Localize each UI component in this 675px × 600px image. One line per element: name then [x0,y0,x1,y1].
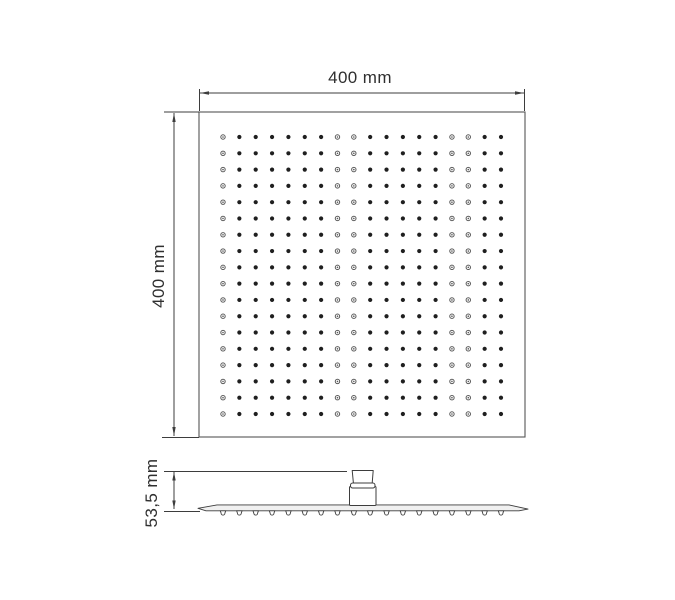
nozzle-dot [483,135,487,139]
nozzle-dot [286,379,290,383]
nozzle-dot [401,396,405,400]
nozzle-dot-center [451,234,453,236]
nozzle-dot-center [451,201,453,203]
nozzle-dot [319,216,323,220]
nozzle-dot [433,347,437,351]
nozzle-dot [286,314,290,318]
nozzle-dot [286,363,290,367]
nozzle-dot-center [353,381,355,383]
nozzle-dot [499,282,503,286]
nozzle-dot [384,330,388,334]
nozzle-dot [499,363,503,367]
width-dimension [200,89,525,111]
nozzle-dot [237,363,241,367]
nozzle-dot [237,298,241,302]
nozzle-dot [499,265,503,269]
side-nozzle [367,511,372,515]
nozzle-dot [401,135,405,139]
nozzle-dot [499,412,503,416]
nozzle-dot [237,167,241,171]
nozzle-dot [384,233,388,237]
nozzle-dot-center [337,169,339,171]
nozzle-dot-center [467,364,469,366]
nozzle-dot [303,184,307,188]
nozzle-dot-center [337,299,339,301]
nozzle-dot [303,314,307,318]
nozzle-dot [286,412,290,416]
nozzle-dot [303,396,307,400]
nozzle-dot [433,249,437,253]
nozzle-dot [384,396,388,400]
nozzle-dot [417,167,421,171]
side-nozzle [220,511,225,515]
nozzle-dot [286,216,290,220]
nozzle-dot-center [222,348,224,350]
nozzle-dot [433,265,437,269]
nozzle-dot [417,363,421,367]
nozzle-dot [499,249,503,253]
nozzle-dot [237,216,241,220]
side-nozzle [482,511,487,515]
nozzle-dot [237,249,241,253]
nozzle-dot [368,184,372,188]
nozzle-dot [499,347,503,351]
nozzle-dot-center [337,413,339,415]
nozzle-dot [499,314,503,318]
nozzle-dot [254,151,258,155]
nozzle-dot [417,298,421,302]
side-nozzle [449,511,454,515]
nozzle-dot [286,233,290,237]
nozzle-dot [254,379,258,383]
nozzle-dot [237,184,241,188]
nozzle-dot-center [353,397,355,399]
side-view [198,471,528,516]
nozzle-dot-center [337,348,339,350]
nozzle-dot [254,314,258,318]
nozzle-dot [303,249,307,253]
nozzle-dot [237,379,241,383]
nozzle-dot [319,135,323,139]
nozzle-dot-center [222,250,224,252]
nozzle-dot [401,282,405,286]
nozzle-dot-center [222,152,224,154]
side-nozzle [433,511,438,515]
nozzle-dot [483,282,487,286]
nozzle-dot [417,200,421,204]
nozzle-dot-center [222,136,224,138]
nozzle-dot-center [222,283,224,285]
nozzle-dot-center [451,413,453,415]
nozzle-dot [384,167,388,171]
nozzle-dot [319,282,323,286]
nozzle-dot [237,330,241,334]
nozzle-dot [483,330,487,334]
nozzle-dot-center [467,250,469,252]
nozzle-dot-center [467,169,469,171]
nozzle-dot [384,184,388,188]
nozzle-dot [499,298,503,302]
nozzle-dot-center [353,152,355,154]
nozzle-dot [270,282,274,286]
nozzle-dot [270,249,274,253]
arrowhead-left [200,91,209,94]
nozzle-dot [384,151,388,155]
nozzle-dot-center [467,299,469,301]
nozzle-dot-center [337,201,339,203]
nozzle-dot [368,282,372,286]
nozzle-dot [417,282,421,286]
nozzle-dot [286,135,290,139]
nozzle-dot [417,216,421,220]
drawing-canvas: 400 mm 400 mm 53,5 mm [0,0,675,600]
side-nozzle [253,511,258,515]
nozzle-dot [433,200,437,204]
side-nozzle [498,511,503,515]
shower-face-outline [199,112,525,437]
nozzle-dot-center [337,218,339,220]
nozzle-dot-center [222,267,224,269]
nozzle-dot [483,347,487,351]
side-nozzle [335,511,340,515]
nozzle-dot [319,151,323,155]
nozzle-dot [499,167,503,171]
nozzle-dot [270,200,274,204]
nozzle-dot [319,265,323,269]
nozzle-dot-center [337,152,339,154]
nozzle-dot-center [353,332,355,334]
nozzle-dot-center [222,299,224,301]
nozzle-dot [303,216,307,220]
nozzle-dot [270,167,274,171]
nozzle-dot [303,135,307,139]
nozzle-dot [384,282,388,286]
nozzle-dot [303,151,307,155]
nozzle-dot-center [222,218,224,220]
nozzle-dot-center [451,348,453,350]
nozzle-dot [433,298,437,302]
nozzle-dot [499,330,503,334]
arrowhead-bottom [172,501,175,510]
nozzle-dot [499,184,503,188]
nozzle-dot [319,249,323,253]
nozzle-dot [319,412,323,416]
nozzle-dot [417,396,421,400]
nozzle-dot [417,412,421,416]
connector-nut [352,471,373,484]
nozzle-dot-center [337,185,339,187]
nozzle-dot [368,298,372,302]
nozzle-dot [401,347,405,351]
nozzle-dot [384,249,388,253]
nozzle-dot-center [353,169,355,171]
nozzle-dot [368,412,372,416]
nozzle-dot [433,314,437,318]
nozzle-dot [433,135,437,139]
nozzle-dot-center [353,348,355,350]
nozzle-dot-center [222,169,224,171]
nozzle-dot [368,200,372,204]
nozzle-dot [319,200,323,204]
nozzle-dot-center [467,315,469,317]
nozzle-dot [384,347,388,351]
nozzle-dot [368,216,372,220]
nozzle-dot [319,167,323,171]
nozzle-dot-center [451,218,453,220]
nozzle-dot [433,396,437,400]
nozzle-dot [270,379,274,383]
nozzle-dot [286,298,290,302]
nozzle-dot [270,151,274,155]
arrowhead-top [172,113,175,122]
nozzle-dot [286,249,290,253]
nozzle-dot-center [451,169,453,171]
nozzle-dot [270,347,274,351]
nozzle-dot [319,363,323,367]
nozzle-dot-center [467,267,469,269]
nozzle-dot [483,200,487,204]
side-nozzle [269,511,274,515]
technical-drawing [0,0,675,600]
nozzle-dot [254,249,258,253]
nozzle-dot [483,379,487,383]
nozzle-dot [303,265,307,269]
nozzle-dot-center [353,283,355,285]
nozzle-dot [303,233,307,237]
nozzle-dot-center [353,267,355,269]
nozzle-dot [384,379,388,383]
nozzle-dot [433,216,437,220]
nozzle-dot [319,330,323,334]
nozzle-dot [237,396,241,400]
nozzle-dot [270,363,274,367]
nozzle-dot [401,249,405,253]
side-nozzle [351,511,356,515]
nozzle-dot [417,249,421,253]
nozzle-dot [384,314,388,318]
nozzle-dot [303,412,307,416]
nozzle-dot-center [451,136,453,138]
nozzle-dot [286,396,290,400]
nozzle-dot [368,347,372,351]
nozzle-dot [286,330,290,334]
nozzle-dot [483,412,487,416]
nozzle-dot [368,379,372,383]
nozzle-dot-center [451,283,453,285]
nozzle-dot [499,396,503,400]
nozzle-dot [401,379,405,383]
nozzle-dot [384,265,388,269]
nozzle-dot [237,151,241,155]
nozzle-dot [433,379,437,383]
side-nozzle [237,511,242,515]
nozzle-dot-center [337,136,339,138]
nozzle-dot-center [467,381,469,383]
nozzle-dot [254,347,258,351]
nozzle-dot [401,233,405,237]
nozzle-dot [499,233,503,237]
nozzle-dot [499,200,503,204]
nozzle-dot [286,265,290,269]
nozzle-dot [417,151,421,155]
nozzle-dot [254,200,258,204]
nozzle-dot [433,282,437,286]
nozzle-dot-center [467,152,469,154]
nozzle-dot [254,298,258,302]
nozzle-dot [319,184,323,188]
nozzle-dot [368,249,372,253]
nozzle-dot-center [353,201,355,203]
nozzle-dot [433,412,437,416]
nozzle-dot-center [467,283,469,285]
nozzle-dot-center [337,381,339,383]
nozzle-dot-center [353,250,355,252]
nozzle-dot [401,216,405,220]
nozzle-dot-center [451,397,453,399]
nozzle-dot [433,363,437,367]
nozzle-dot [483,396,487,400]
nozzle-dot-center [451,250,453,252]
nozzle-dot [254,167,258,171]
nozzle-dot [237,233,241,237]
nozzle-dot [483,151,487,155]
nozzle-dot [499,216,503,220]
nozzle-dot-center [353,136,355,138]
nozzle-dot-center [467,136,469,138]
nozzle-dot [433,167,437,171]
nozzle-dot [254,396,258,400]
nozzle-dot [303,282,307,286]
nozzle-dot [483,216,487,220]
nozzle-dot [483,314,487,318]
nozzle-dot [368,330,372,334]
nozzle-dot-center [467,201,469,203]
nozzle-dot-center [451,332,453,334]
nozzle-dot-center [451,299,453,301]
nozzle-dot [499,151,503,155]
nozzle-dot-center [451,185,453,187]
nozzle-dot [270,265,274,269]
nozzle-dot [254,282,258,286]
connector-body [350,487,377,506]
nozzle-dot [254,412,258,416]
nozzle-dot [401,151,405,155]
nozzle-dot [319,314,323,318]
side-nozzle [318,511,323,515]
nozzle-dot [237,282,241,286]
nozzle-dot [303,379,307,383]
nozzle-dot [254,363,258,367]
nozzle-dot-center [467,348,469,350]
nozzle-dot-center [353,364,355,366]
nozzle-dot [303,298,307,302]
nozzle-dot [483,167,487,171]
nozzle-dot [433,330,437,334]
nozzle-dot [368,233,372,237]
nozzle-dot [433,151,437,155]
nozzle-dot-center [337,234,339,236]
nozzle-dot [417,330,421,334]
side-nozzle [466,511,471,515]
nozzle-dot [401,200,405,204]
nozzle-dot [270,298,274,302]
side-nozzle [384,511,389,515]
nozzle-dot [401,298,405,302]
nozzle-dot [254,184,258,188]
nozzle-dot [401,314,405,318]
nozzle-dot [237,347,241,351]
nozzle-dot [401,330,405,334]
nozzle-dot-center [337,283,339,285]
nozzle-dot [254,330,258,334]
nozzle-dot [417,184,421,188]
side-nozzle [400,511,405,515]
nozzle-dot [384,298,388,302]
nozzle-dot [237,314,241,318]
nozzle-dot [303,363,307,367]
nozzle-dot [417,347,421,351]
nozzle-dot-center [337,397,339,399]
nozzle-dot [270,135,274,139]
nozzle-dot [384,216,388,220]
nozzle-dot [401,412,405,416]
nozzle-dot [433,233,437,237]
nozzle-dot [368,314,372,318]
nozzle-dot [286,167,290,171]
nozzle-dot [499,379,503,383]
nozzle-dot [368,167,372,171]
nozzle-dot-center [353,413,355,415]
nozzle-dot-center [222,397,224,399]
nozzle-dot-center [222,201,224,203]
nozzle-dot-center [467,332,469,334]
height-dimension-label: 400 mm [149,244,169,308]
nozzle-dot [270,233,274,237]
top-view [199,112,525,437]
nozzle-dot [254,233,258,237]
nozzle-dot [483,298,487,302]
nozzle-dot-center [337,364,339,366]
nozzle-dot [417,379,421,383]
nozzle-dot [433,184,437,188]
nozzle-dot-center [467,185,469,187]
nozzle-dot [417,265,421,269]
nozzle-dot-center [451,267,453,269]
nozzle-dot-center [451,315,453,317]
nozzle-dot [319,347,323,351]
nozzle-dot [303,200,307,204]
nozzle-dot-center [353,299,355,301]
nozzle-dot [237,135,241,139]
nozzle-dot [368,265,372,269]
nozzle-dot-center [337,332,339,334]
nozzle-dot-center [467,397,469,399]
nozzle-dot [254,135,258,139]
nozzle-dot [499,135,503,139]
nozzle-dot-center [222,234,224,236]
nozzle-dot-center [353,218,355,220]
width-dimension-label: 400 mm [328,68,392,88]
side-nozzle [286,511,291,515]
nozzle-dot [270,330,274,334]
nozzle-dot-center [337,250,339,252]
arrowhead-bottom [172,427,175,436]
nozzle-dot [483,249,487,253]
nozzle-dot [368,151,372,155]
nozzle-dot-center [337,315,339,317]
nozzle-dot-center [222,413,224,415]
nozzle-dot [401,265,405,269]
